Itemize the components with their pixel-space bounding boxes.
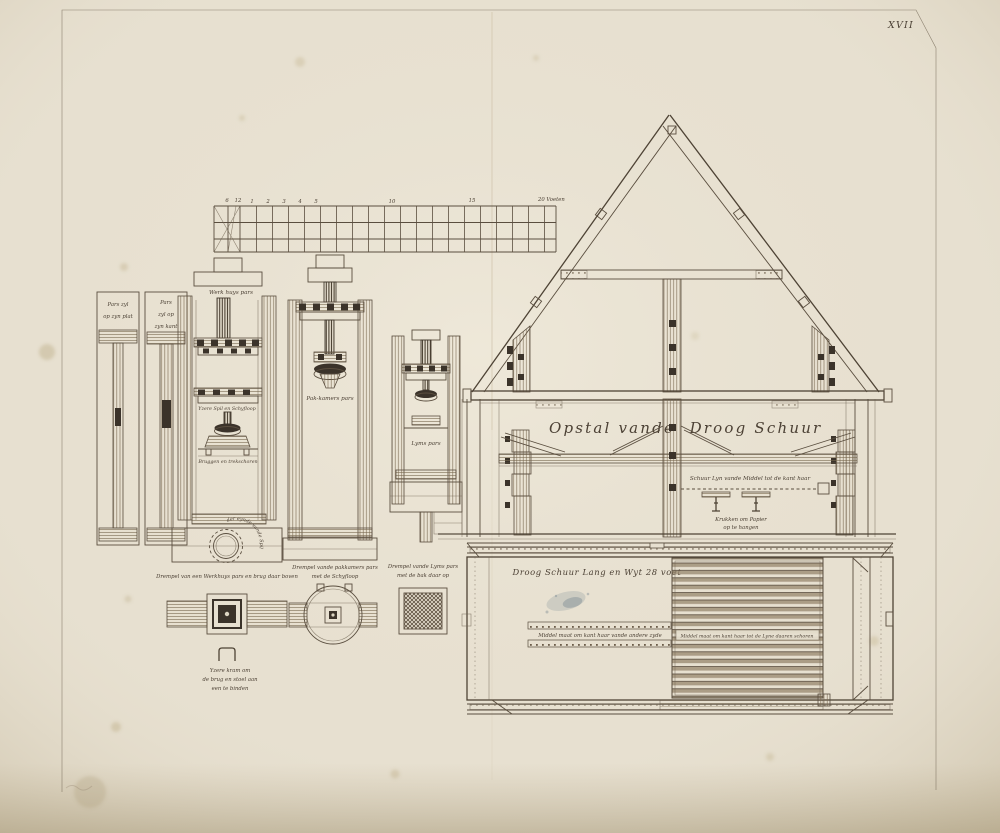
pars-plat-label: Pars zyl (107, 302, 129, 308)
kram-label: een te binden (212, 686, 249, 692)
spil-label: Yzere Spil en Schyfloop (198, 406, 255, 412)
scale-end-label: 20 Voeten (537, 197, 565, 203)
elevation-title-left: Opstal vande (549, 419, 675, 437)
threshold-lyms-label: Drempel vande Lyms pars (387, 564, 459, 570)
scale-tick: 1 (250, 199, 253, 205)
kram-label: de brug en stoel aan (202, 677, 258, 683)
scale-tick: 15 (469, 198, 476, 204)
threshold-pakkamers-label: met de Schyfloop (312, 574, 359, 580)
pars-kant-label: zyn kant (154, 324, 179, 330)
scale-tick: 2 (265, 199, 270, 205)
pars-kant-label: zyl op (157, 312, 174, 318)
schuur-lyn-label: Schuur Lyn vande Middel tot de kant haar (690, 476, 811, 482)
scale-tick: 10 (389, 199, 396, 205)
plan-title: Droog Schuur Lang en Wyt 28 voet (512, 567, 682, 577)
scale-tick: 4 (297, 199, 301, 205)
middel-left-label: Middel maat om kant haar vande andere zy… (537, 633, 662, 639)
plate-number: XVII (887, 20, 914, 31)
bruggen-label: Bruggen en trekschoren (197, 459, 257, 465)
threshold-werkhuys-label: Drempel van een Werkhuys pars en brug da… (155, 574, 298, 580)
press-werkhuys: Werk huys pars Yzere Spil en Schyfloop B… (172, 258, 282, 562)
engraving-plate: XVII 6 12 1 2 3 4 5 10 15 20 Voeten Pars… (0, 0, 1000, 833)
krukken-label: op te hangen (723, 525, 759, 531)
louver-panel (672, 558, 823, 698)
krukken-label: Krukken om Papier (714, 517, 767, 523)
scale-tick: 12 (235, 198, 242, 204)
threshold-pakkamers-label: Drempel vande pakkamers pars (291, 565, 378, 571)
pars-kant-label: Pars (159, 300, 172, 306)
kram-label: Yzere kram om (210, 668, 251, 674)
press-werkhuys-title: Werk huys pars (209, 290, 253, 296)
press-pakkamers-title: Pak-kamers pars (305, 396, 353, 402)
press-lyms-title: Lyms pars (410, 441, 440, 447)
engraving-sheet: XVII 6 12 1 2 3 4 5 10 15 20 Voeten Pars… (0, 0, 1000, 833)
middel-right-label: Middel maat om kant haar tot de Lyne daa… (680, 634, 814, 640)
elevation-title-right: Droog Schuur (689, 419, 823, 437)
pars-plat-label: op zyn plat (103, 314, 133, 320)
threshold-lyms-label: met de bak daar op (397, 573, 450, 579)
